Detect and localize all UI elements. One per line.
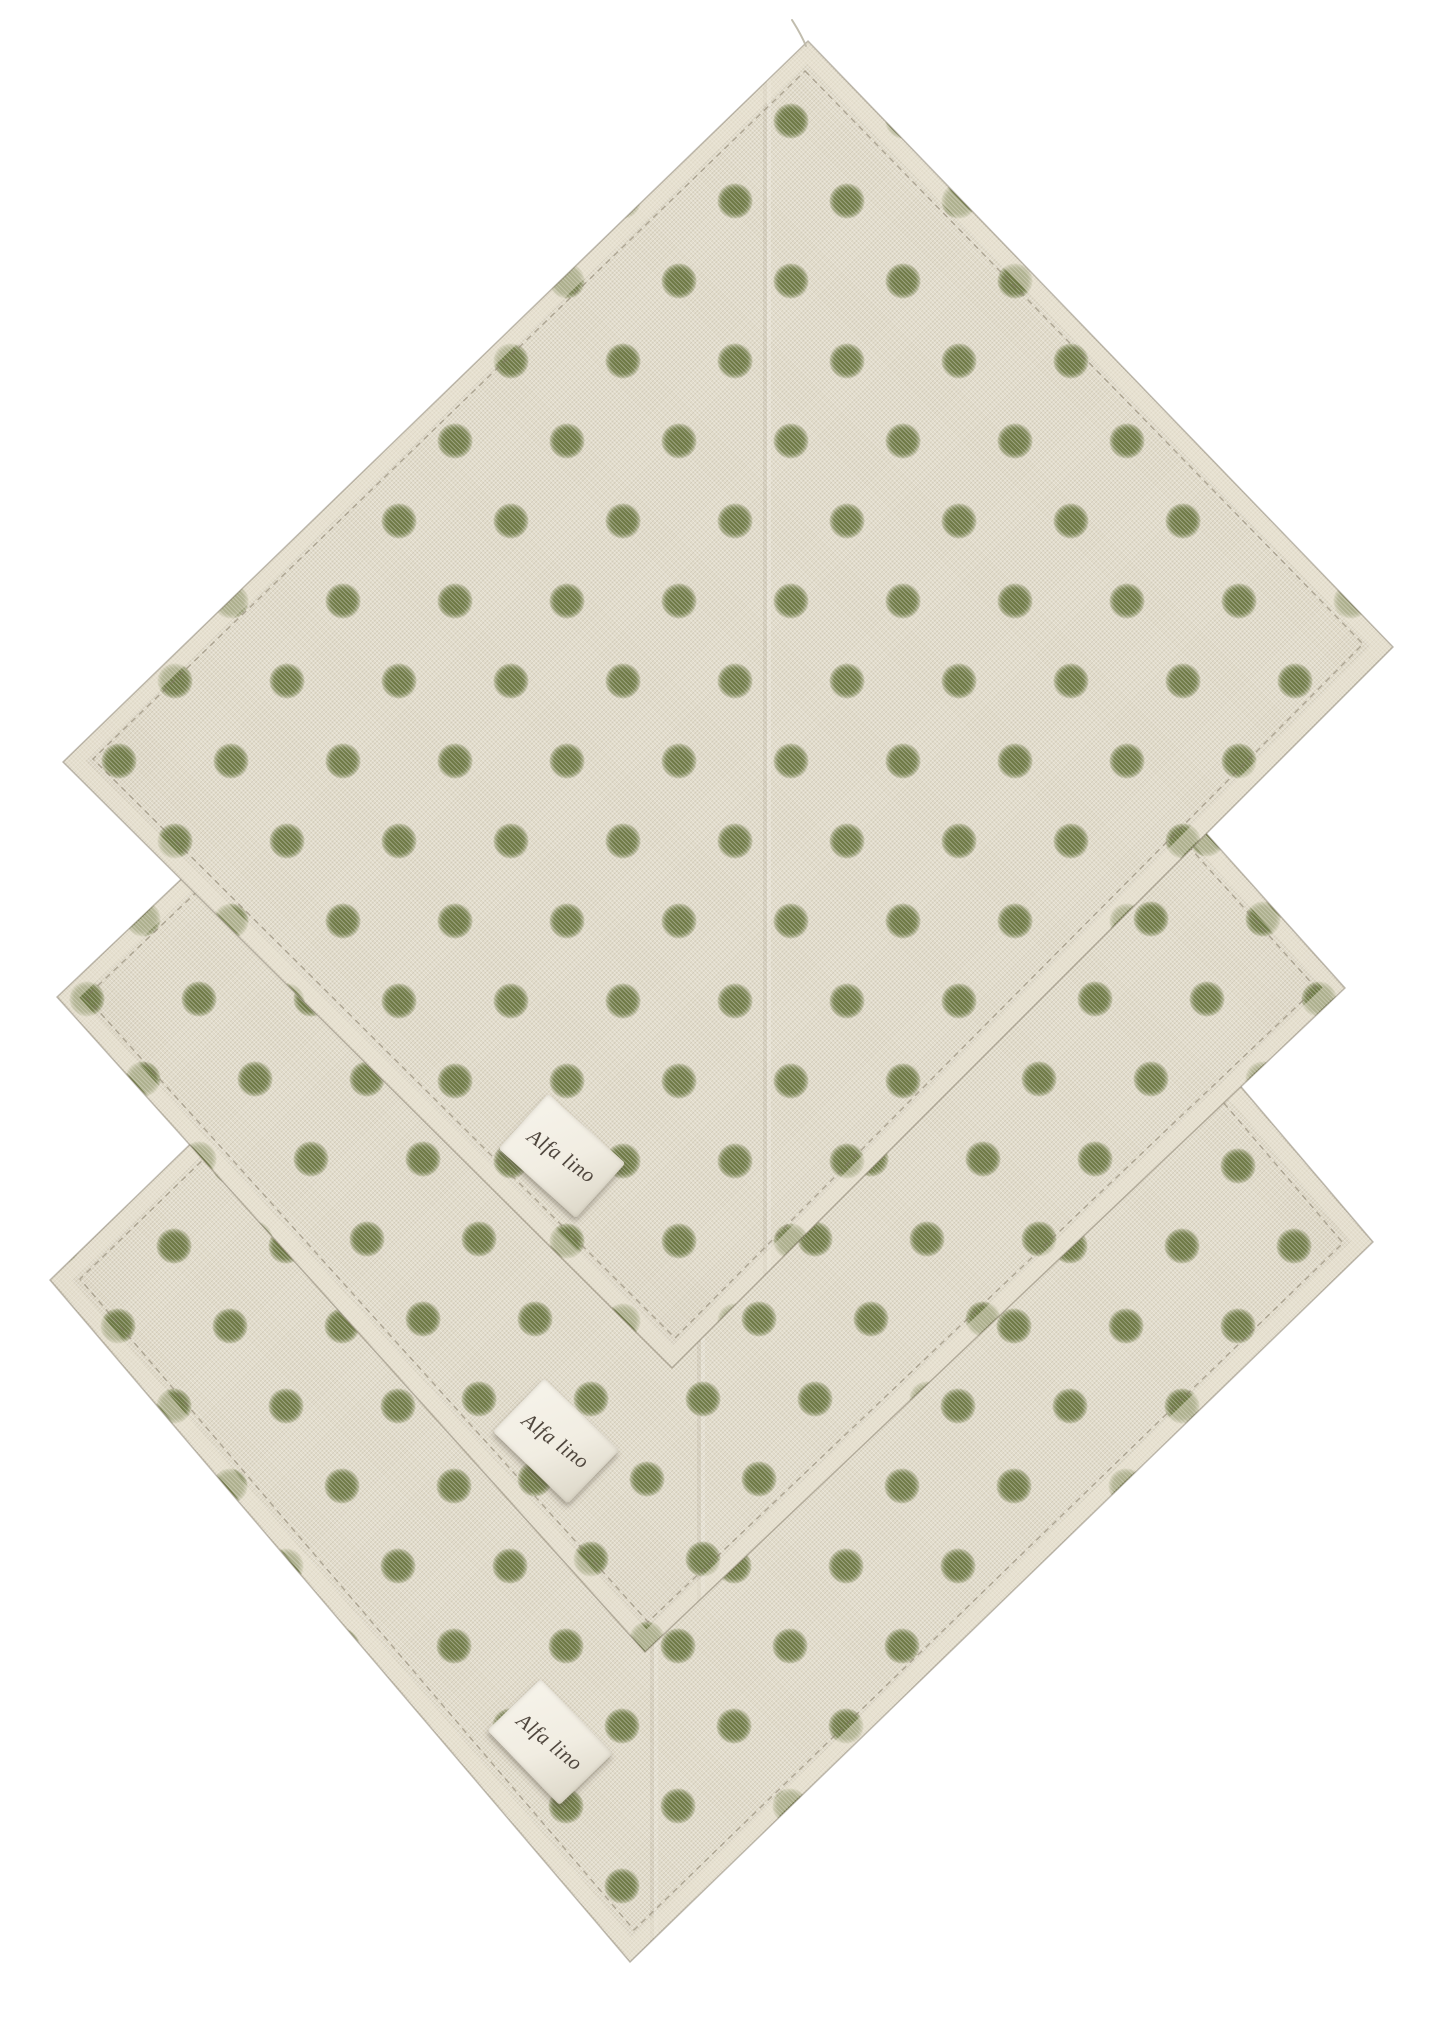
tag-label-text: Alfa lino [523, 1124, 601, 1189]
loose-thread [792, 20, 806, 46]
tag-label-text: Alfa lino [512, 1708, 588, 1776]
product-photo-scene: Alfa lino Alfa lino Alfa lino [0, 0, 1440, 2037]
tag-label-text: Alfa lino [518, 1408, 595, 1475]
